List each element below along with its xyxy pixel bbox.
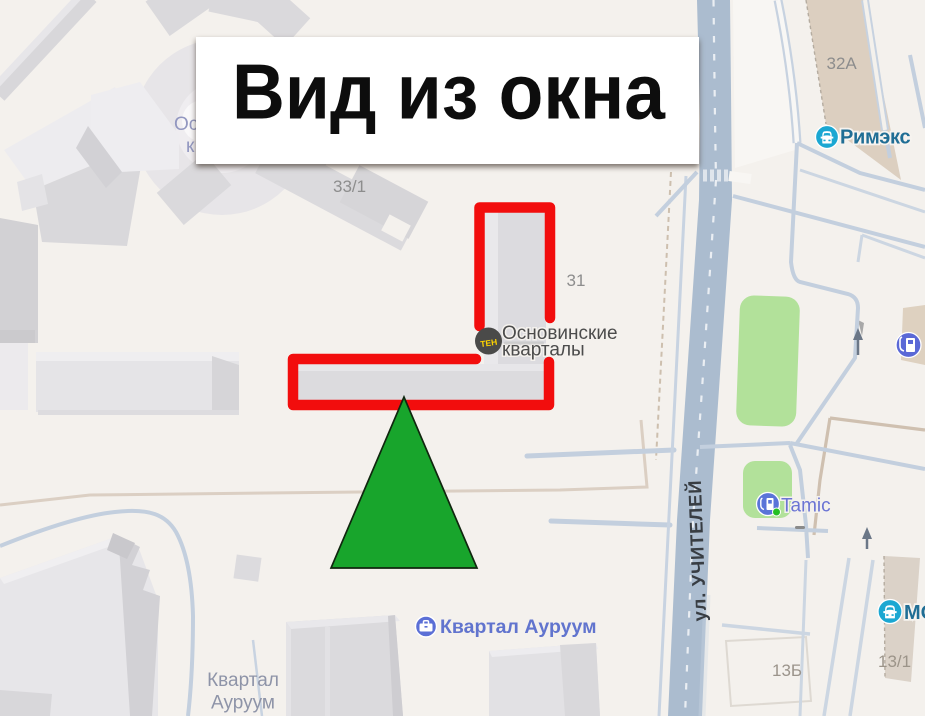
svg-text:13/1: 13/1: [878, 652, 911, 671]
svg-text:Вид из окна: Вид из окна: [232, 48, 666, 136]
svg-text:31: 31: [567, 271, 586, 290]
svg-text:Квартал: Квартал: [207, 670, 279, 691]
svg-text:13Б: 13Б: [772, 661, 802, 680]
svg-text:Ауруум: Ауруум: [211, 693, 275, 714]
svg-text:Ос: Ос: [174, 114, 198, 135]
svg-text:к: к: [186, 136, 195, 157]
svg-text:Римэкс: Римэкс: [840, 127, 910, 149]
svg-text:33/1: 33/1: [333, 177, 366, 196]
svg-text:Tamic: Tamic: [781, 496, 831, 517]
svg-text:32А: 32А: [827, 54, 858, 73]
svg-text:МО: МО: [904, 602, 925, 624]
svg-text:Квартал Ауруум: Квартал Ауруум: [440, 616, 597, 638]
